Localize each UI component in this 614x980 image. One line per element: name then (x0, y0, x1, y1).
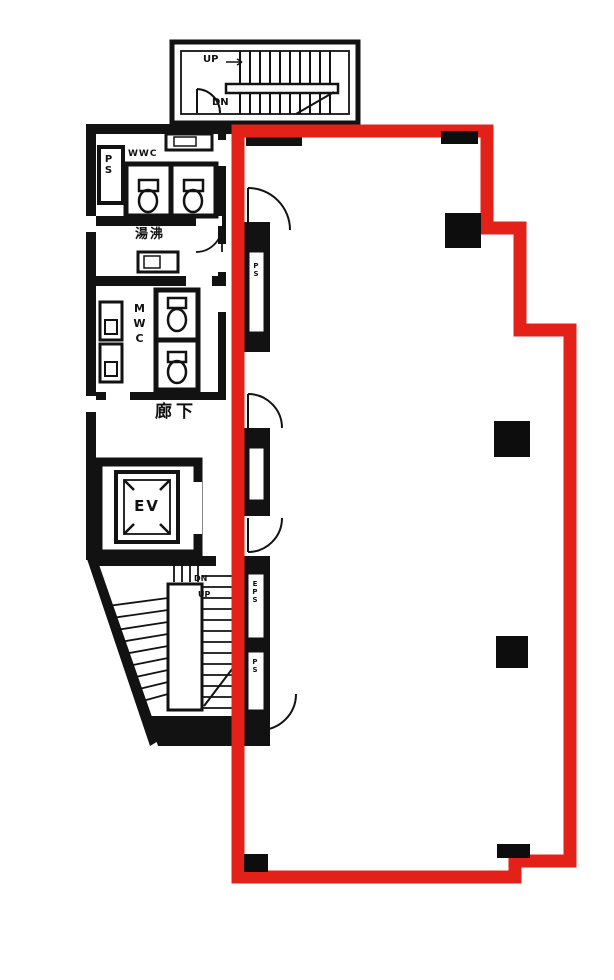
bottom-staircase (108, 560, 242, 710)
label-shaft-a: PS (252, 262, 259, 324)
label-womens-wc: WWC (128, 150, 157, 159)
womens-wc-fixtures (99, 134, 216, 216)
floor-plan: UP DN PS WWC 湯沸 MWC 廊下 EV DN UP PS EPS P… (0, 0, 614, 980)
label-shaft-b: EPS (251, 580, 258, 634)
label-shaft-c: PS (251, 658, 258, 704)
pillars (244, 131, 530, 872)
label-hot-water-room: 湯沸 (135, 228, 165, 241)
label-top-stairs-up: UP (203, 55, 218, 65)
mens-wc-fixtures (100, 290, 198, 390)
label-mens-wc: MWC (134, 302, 145, 372)
highlighted-unit-outline (238, 131, 570, 877)
label-elevator: EV (116, 499, 178, 514)
floorplan-linework (0, 0, 614, 980)
label-pipe-shaft: PS (103, 154, 113, 198)
label-bottom-stairs-up: UP (198, 591, 210, 599)
label-corridor: 廊下 (155, 404, 197, 421)
label-top-stairs-down: DN (212, 98, 229, 108)
top-staircase (172, 42, 358, 123)
label-bottom-stairs-down: DN (194, 575, 207, 583)
elevator-door-opening (192, 482, 202, 534)
unit-wall-shafts (244, 134, 302, 746)
